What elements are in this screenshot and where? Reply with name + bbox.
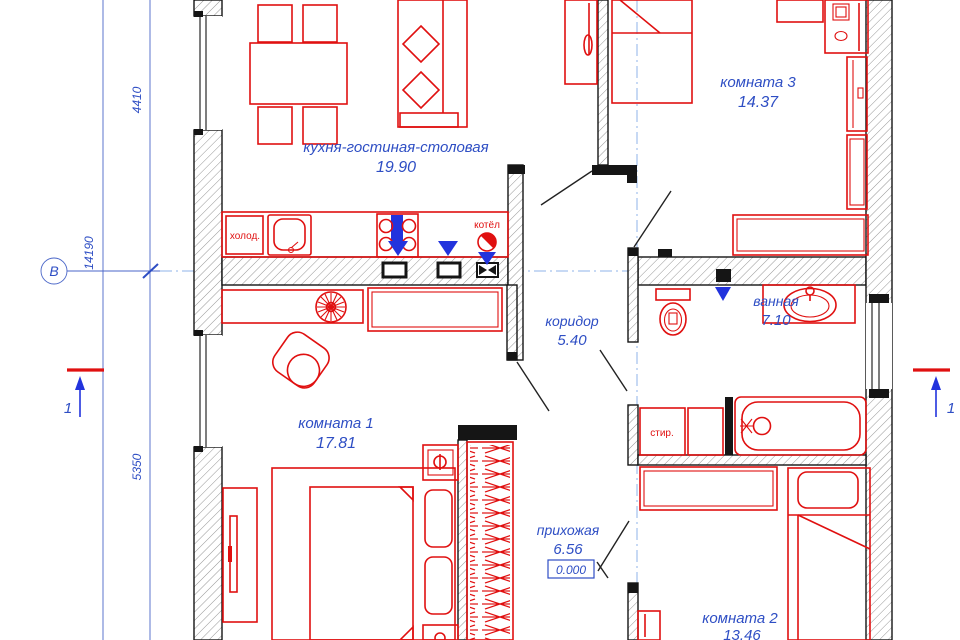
elevation-value: 0.000 (556, 563, 586, 577)
room-3: комната 3 14.37 (612, 0, 868, 255)
axis-marker-B: В (41, 258, 67, 284)
hallway-wardrobe (467, 442, 513, 640)
door-room2 (598, 521, 629, 571)
fridge: холод. (226, 216, 263, 254)
window-room1 (194, 330, 222, 452)
nightstand-lamp (423, 445, 458, 480)
room-label: ванная (753, 293, 799, 309)
room-label: кухня-гостиная-столовая (303, 139, 488, 156)
room-2: комната 2 13.46 (638, 467, 870, 640)
room-label: комната 1 (298, 415, 373, 432)
armchair (268, 327, 334, 392)
bathtub (735, 397, 866, 455)
room-area: 14.37 (738, 94, 779, 111)
sofa (398, 0, 467, 127)
room-label: прихожая (537, 522, 600, 538)
dim-4410: 4410 (130, 86, 144, 113)
desk (825, 0, 868, 53)
shelf-with-fan (222, 290, 363, 323)
room-area: 7.10 (761, 312, 791, 329)
vent-bowtie-icon (477, 263, 498, 277)
section-marker-right: 1 (913, 370, 955, 417)
wardrobe-room3-right (847, 57, 867, 209)
dim-5350: 5350 (130, 453, 144, 480)
kitchen-living-dining-room: холод. котёл (222, 0, 597, 265)
corridor: коридор 5.40 (545, 313, 598, 349)
cabinet-room2 (638, 611, 660, 640)
room-label: коридор (545, 313, 598, 329)
bed-room2 (788, 468, 870, 640)
room-area: 17.81 (316, 435, 356, 452)
section-label: 1 (64, 400, 72, 417)
wardrobe-room1-top (368, 288, 502, 331)
stove (377, 214, 418, 257)
room-area: 13.46 (723, 627, 761, 640)
dimension-lines: 4410 14190 5350 (67, 0, 160, 640)
wardrobe-room3-bottom (733, 215, 868, 255)
door-kitchen-corridor (541, 171, 592, 205)
water-point-icon (438, 241, 458, 256)
floor-plan-canvas: 4410 14190 5350 В 1 1 (0, 0, 960, 640)
boiler-label: котёл (474, 220, 500, 231)
door-room3 (634, 191, 671, 247)
toilet (656, 289, 690, 335)
bed-room3 (612, 0, 692, 103)
door-room1 (517, 362, 549, 411)
section-label: 1 (947, 400, 955, 417)
window-kitchen (194, 11, 222, 135)
room-area: 5.40 (557, 332, 587, 349)
double-bed (272, 468, 455, 640)
fan-icon (317, 293, 345, 321)
room-label: комната 2 (702, 610, 778, 627)
bathroom: стир. ванная 7.10 (640, 285, 866, 455)
bath-cabinet (688, 408, 723, 455)
fridge-label: холод. (230, 231, 260, 242)
washer-label: стир. (650, 428, 674, 439)
dim-14190: 14190 (82, 236, 96, 270)
kitchen-sink (268, 215, 311, 255)
washing-machine: стир. (640, 408, 685, 455)
window-bathroom (866, 294, 892, 398)
bedside-table (777, 0, 823, 22)
hallway: прихожая 6.56 0.000 (467, 442, 608, 640)
water-point-icon (715, 287, 731, 301)
tv-stand (223, 488, 257, 622)
axis-label: В (49, 263, 58, 279)
kitchen-counter: холод. котёл (222, 212, 508, 265)
room-area: 19.90 (376, 159, 416, 176)
floor-lamp (565, 0, 597, 84)
floor-plan-page: 4410 14190 5350 В 1 1 (0, 0, 960, 640)
section-marker-left: 1 (64, 370, 104, 417)
room-label: комната 3 (720, 74, 796, 91)
room-area: 6.56 (553, 541, 583, 558)
door-bathroom (600, 350, 627, 391)
wardrobe-room2 (640, 467, 777, 510)
dining-table-and-chairs (250, 5, 347, 144)
nightstand-lamp (423, 625, 458, 640)
